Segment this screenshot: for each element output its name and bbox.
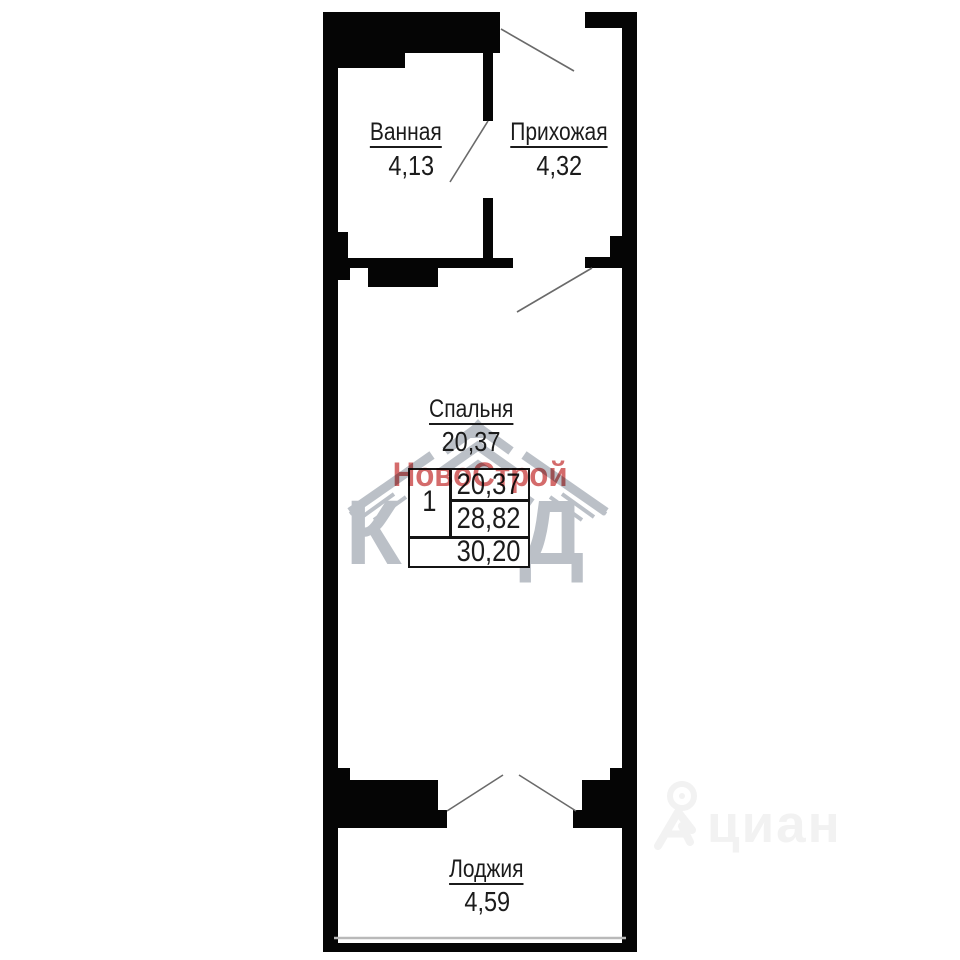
room-area-bedroom: 20,37 [381,426,561,458]
floor-plan: КВД [0,0,960,960]
wall-loggia-left-block [335,780,438,810]
wall-top-right [585,12,637,28]
wall-loggia-left-step [335,768,350,780]
room-label-loggia-text: Лоджия [449,855,523,884]
listing-site-text: циан [707,794,842,855]
entrance-door-swing [501,29,574,71]
wall-mid [323,258,513,268]
wall-mid-step [335,268,350,280]
balcony-door-swing-left [447,775,503,811]
room-label-bedroom: Спальня [381,395,561,424]
table-area-without-loggia: 28,82 [451,501,527,536]
room-area-hallway: 4,32 [469,150,649,182]
wall-vent-block [368,268,438,287]
wall-bath-divider-upper [483,28,493,121]
wall-bath-corner-block [335,232,348,260]
wall-loggia-right-block [582,780,637,810]
table-total-area: 30,20 [451,538,527,565]
listing-site-watermark: циан [652,778,872,853]
room-label-bathroom-text: Ванная [370,118,442,147]
wall-loggia-right-sill [573,810,637,828]
room-label-bedroom-text: Спальня [429,395,513,424]
room-label-hallway: Прихожая [469,118,649,147]
room-area-loggia: 4,59 [397,886,577,918]
developer-name-watermark: НовоСтрой [368,456,592,495]
balcony-door-swing-right [519,775,576,811]
bedroom-door-swing [517,268,592,312]
wall-top-thick-left [323,12,405,68]
listing-site-pin-icon [652,778,708,853]
wall-loggia-right-step [610,768,637,780]
wall-bath-divider-lower [483,198,493,265]
wall-loggia-left-sill [323,810,447,828]
wall-bottom [323,943,637,952]
room-label-loggia: Лоджия [396,855,576,884]
room-label-hallway-text: Прихожая [510,118,607,147]
wall-hall-corner-block [610,236,637,260]
